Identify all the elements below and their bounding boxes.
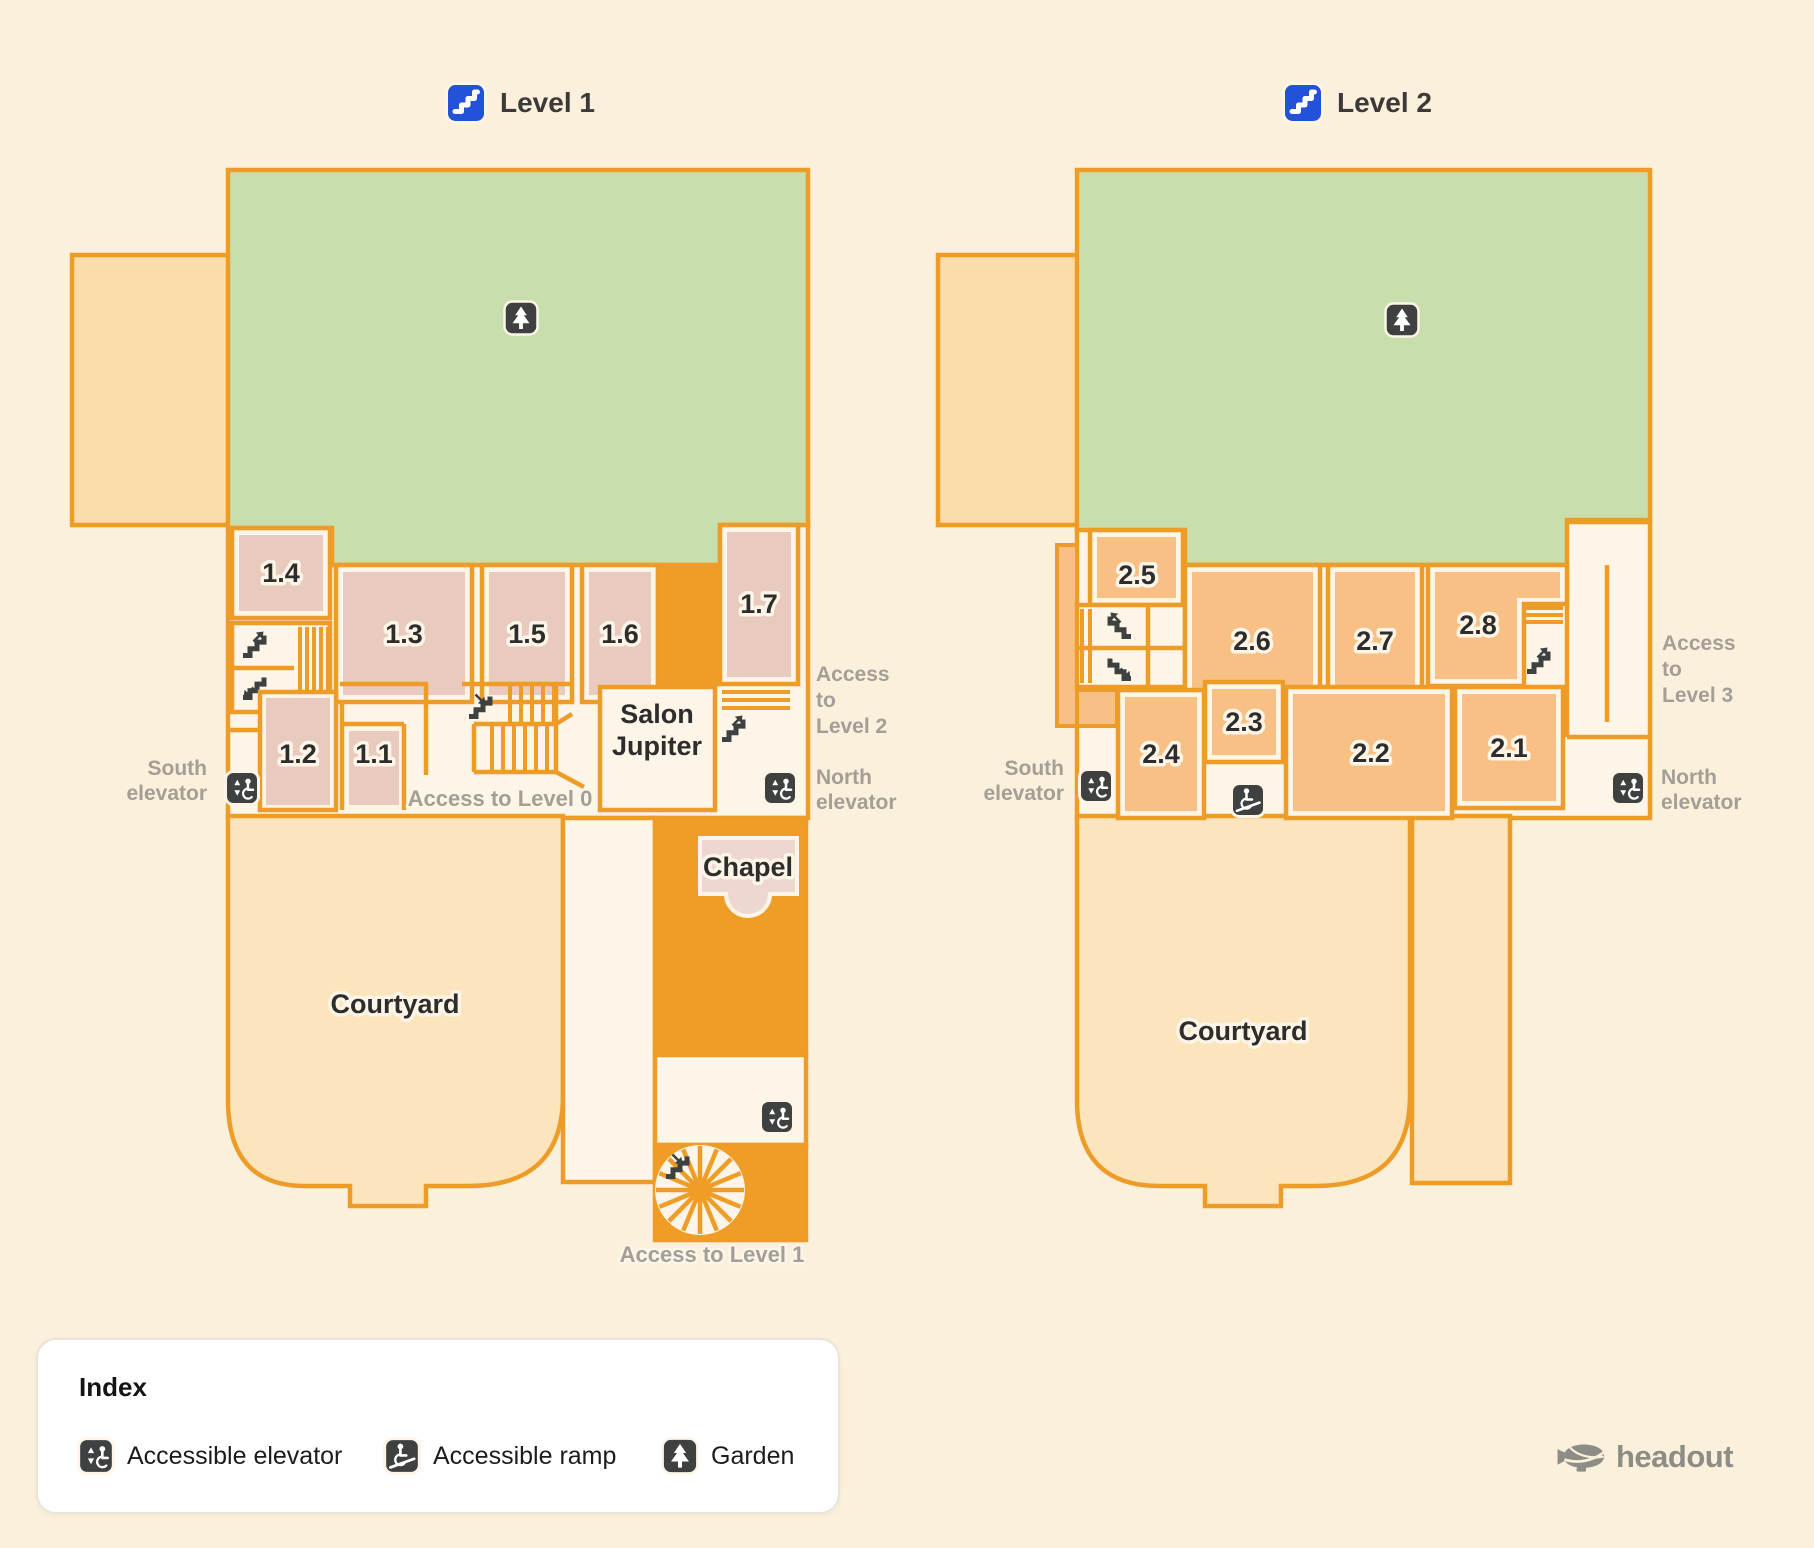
access-level3-label-3: Level 3 xyxy=(1662,684,1733,707)
index-card: Index Accessible elevator Accessible ram… xyxy=(36,1338,840,1514)
legend-label: Accessible ramp xyxy=(433,1442,616,1471)
accessible-ramp-icon xyxy=(1232,784,1265,817)
headout-logo-text: headout xyxy=(1616,1439,1733,1475)
south-elevator-label-1: South xyxy=(1005,757,1064,780)
north-elevator-label-2: elevator xyxy=(1661,791,1742,814)
room-2-3-label: 2.3 xyxy=(1225,707,1263,737)
south-elevator-label-2: elevator xyxy=(126,782,207,805)
accessible-elevator-icon xyxy=(761,1101,794,1134)
level2-garden xyxy=(1077,170,1650,565)
level1-annex xyxy=(72,255,230,525)
north-elevator-label-2: elevator xyxy=(816,791,897,814)
stairs-badge-icon xyxy=(1282,82,1324,124)
floor-plan-canvas: 1.4 1.3 1.5 1.6 1.7 1.2 1.1 Salon Jupite… xyxy=(0,0,1814,1548)
legend-item-accessible-ramp: Accessible ramp xyxy=(383,1437,616,1475)
salon-jupiter-label-1: Salon xyxy=(620,699,694,729)
access-level3-label-2: to xyxy=(1662,658,1682,681)
room-1-7-label: 1.7 xyxy=(740,589,778,619)
legend-label: Accessible elevator xyxy=(127,1442,342,1471)
room-2-5-label: 2.5 xyxy=(1118,560,1156,590)
room-2-4-label: 2.4 xyxy=(1142,739,1180,769)
legend-item-accessible-elevator: Accessible elevator xyxy=(77,1437,342,1475)
north-elevator-label-1: North xyxy=(1661,766,1717,789)
legend-item-garden: Garden xyxy=(661,1437,794,1475)
accessible-elevator-icon xyxy=(77,1437,115,1475)
level2-title-label: Level 2 xyxy=(1337,87,1432,119)
level2-left-strip xyxy=(1057,545,1077,726)
index-title: Index xyxy=(79,1372,147,1403)
south-elevator-label-2: elevator xyxy=(983,782,1064,805)
room-1-6-label: 1.6 xyxy=(601,619,639,649)
room-1-4-label: 1.4 xyxy=(262,558,300,588)
room-2-7-label: 2.7 xyxy=(1356,626,1394,656)
courtyard-label: Courtyard xyxy=(1178,1016,1307,1046)
level1-inner-corridor xyxy=(658,565,720,684)
stairs-badge-icon xyxy=(445,82,487,124)
room-2-6-label: 2.6 xyxy=(1233,626,1271,656)
garden-icon xyxy=(1386,304,1419,337)
level1-plan: 1.4 1.3 1.5 1.6 1.7 1.2 1.1 Salon Jupite… xyxy=(72,170,897,1267)
room-2-1-label: 2.1 xyxy=(1490,733,1528,763)
access-level2-label-3: Level 2 xyxy=(816,715,887,738)
garden-icon xyxy=(505,302,538,335)
level2-left-block xyxy=(1077,690,1117,726)
level1-garden xyxy=(228,170,808,565)
courtyard-label: Courtyard xyxy=(330,989,459,1019)
level2-courtyard xyxy=(1077,816,1410,1206)
level1-title-label: Level 1 xyxy=(500,87,595,119)
salon-jupiter-label-2: Jupiter xyxy=(612,731,703,761)
accessible-ramp-icon xyxy=(383,1437,421,1475)
north-elevator-label-1: North xyxy=(816,766,872,789)
garden-icon xyxy=(661,1437,699,1475)
level2-annex xyxy=(938,255,1079,525)
level2-wing-strip xyxy=(1412,816,1510,1183)
spiral-staircase-center xyxy=(695,1185,705,1195)
level1-title: Level 1 xyxy=(445,82,595,124)
room-1-3-label: 1.3 xyxy=(385,619,423,649)
level1-corridor-white xyxy=(563,818,655,1182)
room-2-8-label: 2.8 xyxy=(1459,610,1497,640)
chapel-label: Chapel xyxy=(703,852,793,882)
level2-title: Level 2 xyxy=(1282,82,1432,124)
south-elevator-label-1: South xyxy=(148,757,207,780)
room-1-2-label: 1.2 xyxy=(279,739,317,769)
level2-plan: 2.5 2.6 2.7 2.8 2.4 2.3 2.2 2.1 Courtyar… xyxy=(938,170,1742,1206)
access-level2-label-1: Access xyxy=(816,663,890,686)
accessible-elevator-icon xyxy=(1080,770,1113,803)
blimp-icon xyxy=(1552,1438,1608,1476)
headout-logo: headout xyxy=(1552,1438,1733,1476)
room-2-2-label: 2.2 xyxy=(1352,738,1390,768)
access-level2-label-2: to xyxy=(816,689,836,712)
access-level1-label: Access to Level 1 xyxy=(620,1242,805,1267)
legend-label: Garden xyxy=(711,1442,794,1471)
access-level0-label: Access to Level 0 xyxy=(408,786,593,811)
access-level3-label-1: Access xyxy=(1662,632,1736,655)
accessible-elevator-icon xyxy=(226,772,259,805)
room-1-5-label: 1.5 xyxy=(508,619,546,649)
accessible-elevator-icon xyxy=(1612,772,1645,805)
accessible-elevator-icon xyxy=(764,772,797,805)
room-1-1-label: 1.1 xyxy=(355,739,393,769)
